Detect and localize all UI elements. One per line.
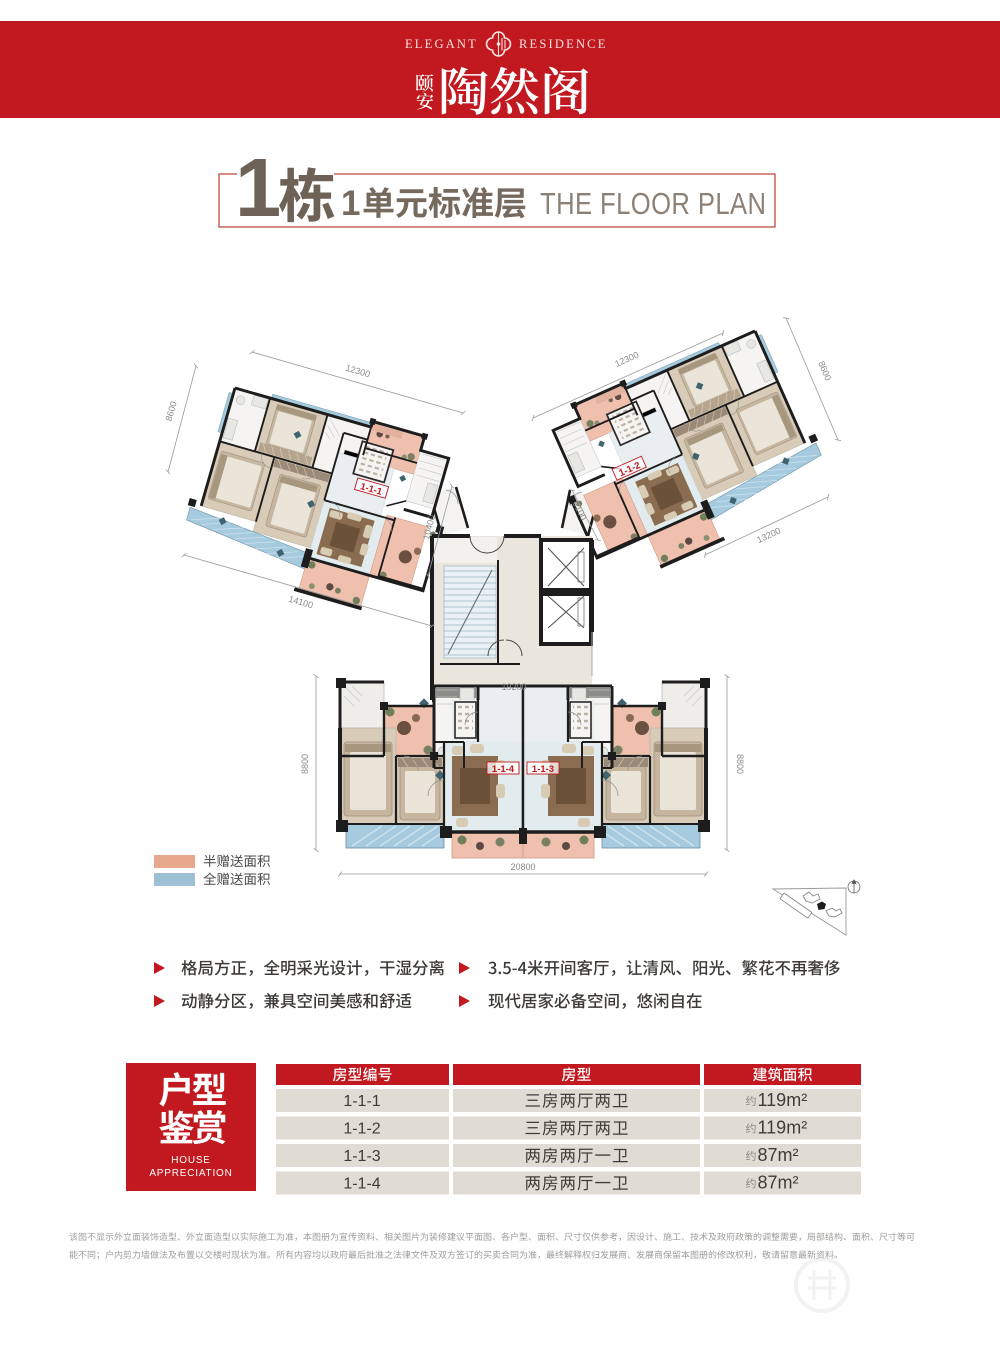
svg-text:119m²: 119m²	[758, 1118, 808, 1138]
svg-text:19200: 19200	[501, 682, 526, 692]
svg-text:1-1-2: 1-1-2	[343, 1121, 380, 1138]
svg-text:THE FLOOR PLAN: THE FLOOR PLAN	[540, 187, 766, 221]
svg-text:87m²: 87m²	[758, 1145, 799, 1165]
svg-text:87m²: 87m²	[758, 1173, 799, 1193]
svg-text:1-1-4: 1-1-4	[492, 764, 515, 775]
svg-text:8800: 8800	[300, 754, 310, 774]
svg-text:1: 1	[341, 184, 360, 223]
svg-text:APPRECIATION: APPRECIATION	[149, 1168, 232, 1179]
svg-text:1-1-1: 1-1-1	[343, 1093, 380, 1110]
svg-text:1-1-3: 1-1-3	[343, 1148, 380, 1165]
svg-text:1-1-3: 1-1-3	[532, 764, 554, 775]
svg-text:8800: 8800	[735, 754, 745, 774]
svg-text:1-1-4: 1-1-4	[343, 1176, 380, 1193]
svg-text:119m²: 119m²	[758, 1090, 808, 1110]
svg-text:RESIDENCE: RESIDENCE	[519, 37, 608, 51]
svg-text:HOUSE: HOUSE	[171, 1155, 211, 1166]
svg-text:1: 1	[235, 141, 281, 234]
svg-text:20800: 20800	[510, 862, 535, 872]
svg-text:ELEGANT: ELEGANT	[405, 37, 478, 51]
